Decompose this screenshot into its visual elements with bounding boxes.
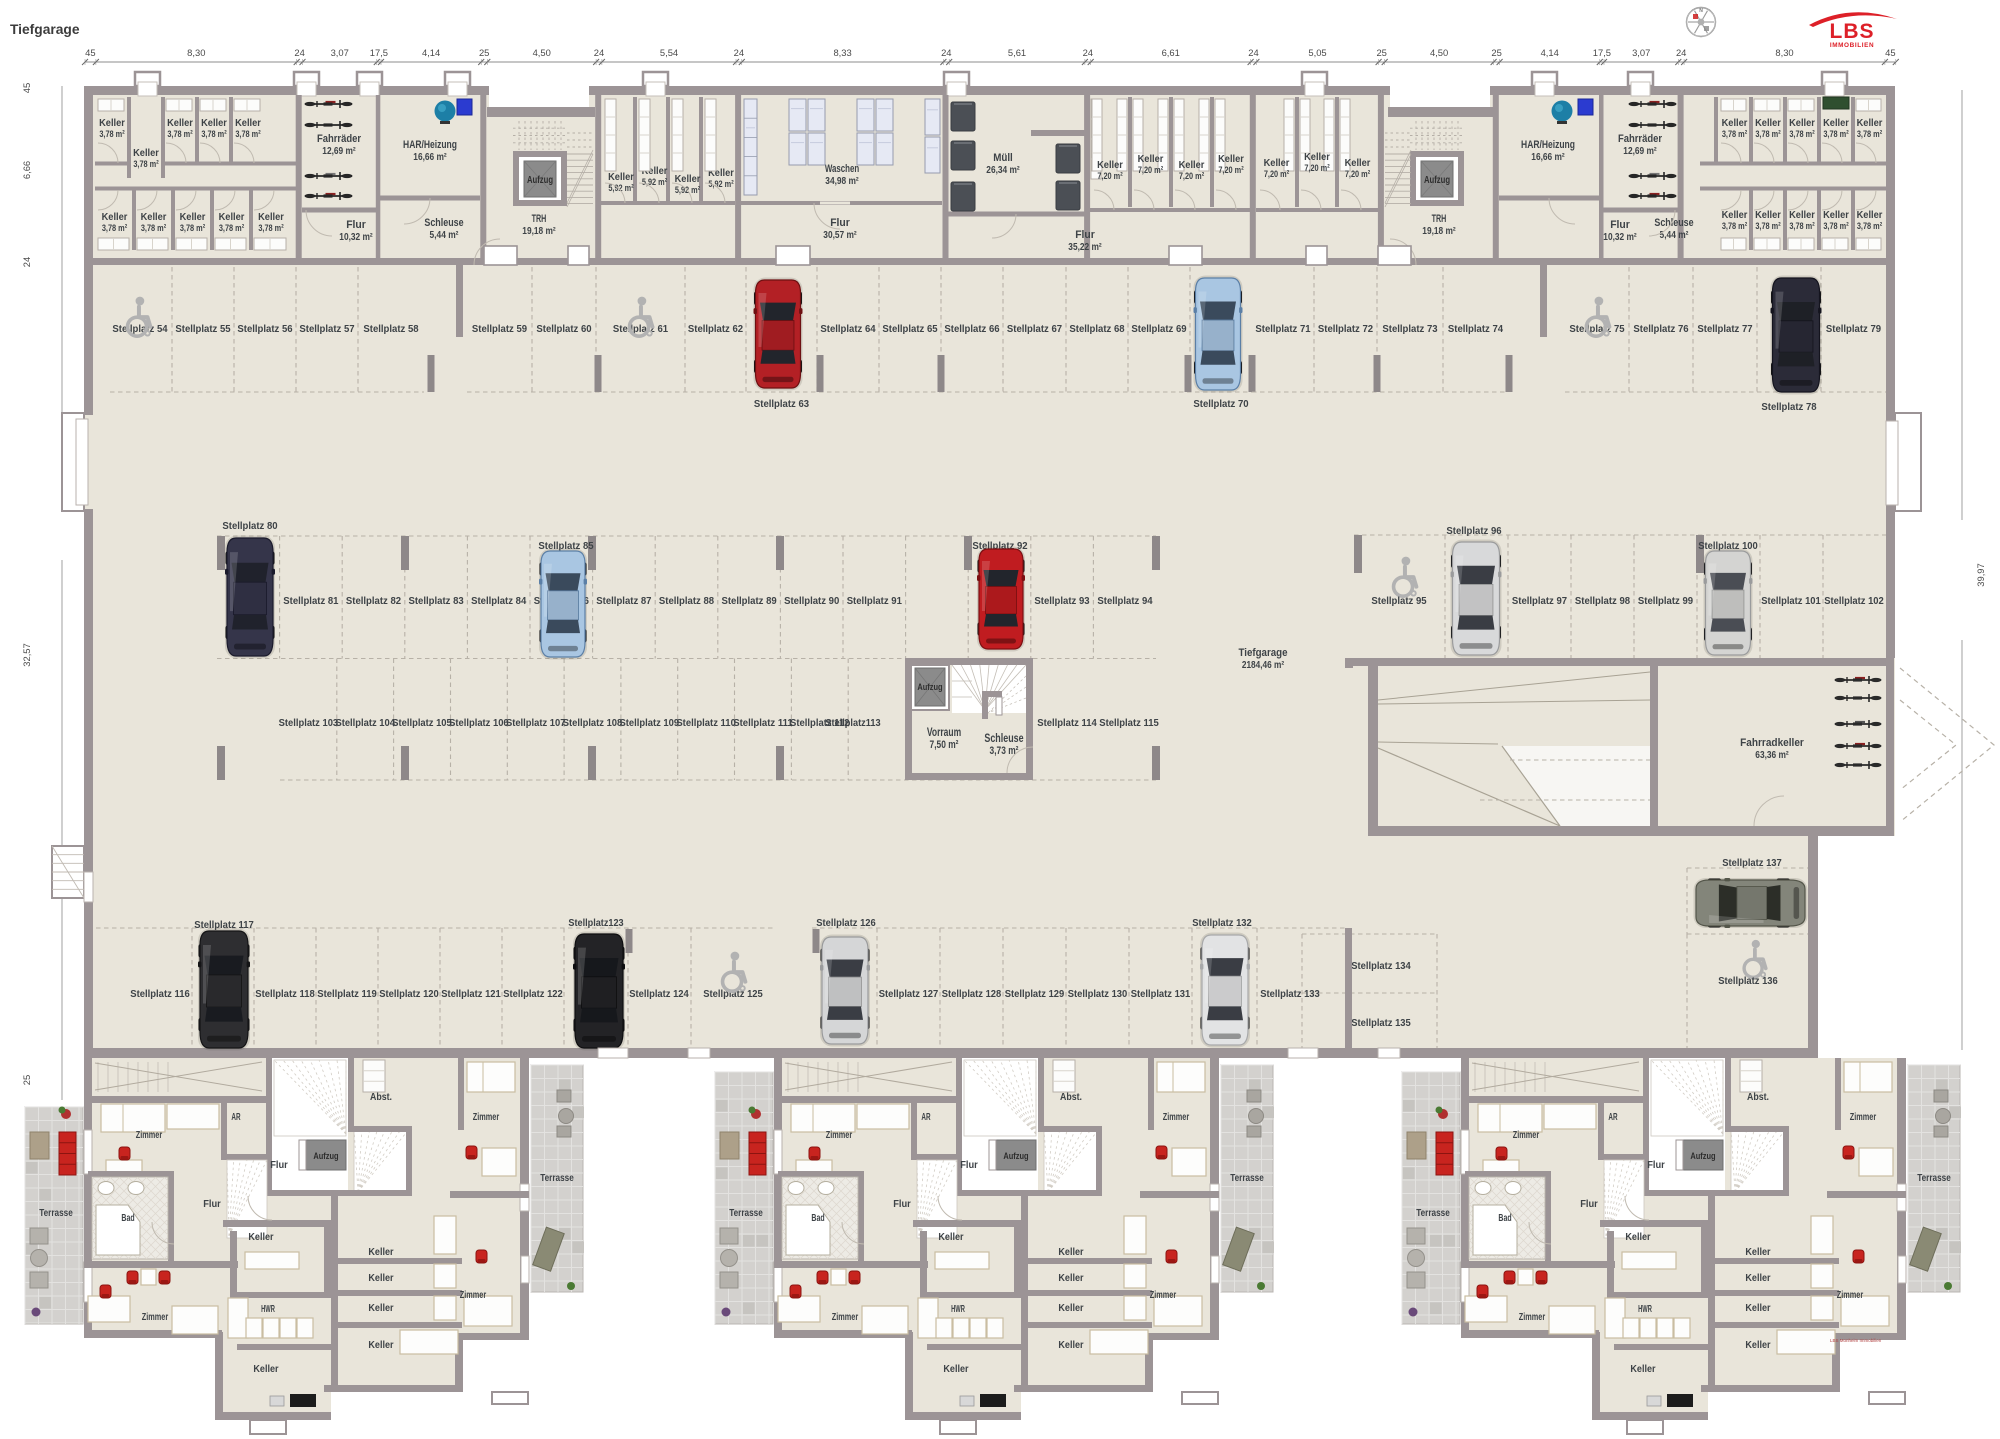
- svg-text:Zimmer: Zimmer: [460, 1290, 486, 1301]
- svg-text:4,50: 4,50: [1430, 47, 1448, 58]
- svg-text:Stellplatz 106: Stellplatz 106: [449, 718, 509, 729]
- svg-text:Abst.: Abst.: [1747, 1092, 1769, 1103]
- svg-text:Stellplatz 88: Stellplatz 88: [659, 596, 714, 607]
- svg-text:Stellplatz 54: Stellplatz 54: [112, 324, 167, 335]
- svg-text:Stellplatz 95: Stellplatz 95: [1371, 596, 1426, 607]
- svg-text:Müll: Müll: [993, 152, 1013, 164]
- svg-text:Stellplatz 135: Stellplatz 135: [1351, 1018, 1411, 1029]
- svg-text:Vorraum: Vorraum: [927, 725, 961, 739]
- svg-text:Stellplatz 98: Stellplatz 98: [1575, 596, 1630, 607]
- svg-text:Stellplatz 130: Stellplatz 130: [1068, 989, 1128, 1000]
- svg-text:Stellplatz 77: Stellplatz 77: [1697, 324, 1752, 335]
- svg-text:Stellplatz113: Stellplatz113: [825, 718, 880, 729]
- svg-text:Stellplatz 109: Stellplatz 109: [620, 718, 680, 729]
- svg-text:Zimmer: Zimmer: [473, 1112, 499, 1123]
- svg-text:Stellplatz 128: Stellplatz 128: [942, 989, 1002, 1000]
- svg-text:Schleuse: Schleuse: [424, 217, 463, 229]
- svg-text:5,92 m²: 5,92 m²: [642, 176, 667, 187]
- svg-text:Stellplatz 89: Stellplatz 89: [722, 596, 777, 607]
- svg-text:Stellplatz 134: Stellplatz 134: [1351, 961, 1411, 972]
- svg-text:8,30: 8,30: [187, 47, 205, 58]
- svg-text:Stellplatz 116: Stellplatz 116: [130, 989, 190, 1000]
- svg-text:Terrasse: Terrasse: [729, 1208, 763, 1219]
- svg-text:HAR/Heizung: HAR/Heizung: [403, 139, 457, 151]
- svg-text:3,78 m²: 3,78 m²: [1789, 128, 1814, 139]
- svg-text:Stellplatz 126: Stellplatz 126: [816, 918, 876, 929]
- svg-text:24: 24: [1676, 47, 1686, 58]
- svg-text:63,36 m²: 63,36 m²: [1755, 749, 1789, 761]
- svg-text:25: 25: [21, 1075, 32, 1085]
- svg-text:3,78 m²: 3,78 m²: [1722, 220, 1747, 231]
- svg-text:Stellplatz 131: Stellplatz 131: [1131, 989, 1191, 1000]
- svg-text:Keller: Keller: [368, 1247, 393, 1258]
- svg-text:5,92 m²: 5,92 m²: [675, 184, 700, 195]
- svg-text:Stellplatz 124: Stellplatz 124: [629, 989, 689, 1000]
- svg-text:Bad: Bad: [121, 1213, 134, 1224]
- svg-text:Stellplatz123: Stellplatz123: [568, 918, 623, 929]
- svg-text:Stellplatz 59: Stellplatz 59: [472, 324, 527, 335]
- svg-text:Keller: Keller: [253, 1364, 278, 1375]
- svg-text:3,78 m²: 3,78 m²: [180, 222, 205, 233]
- svg-text:Stellplatz 103: Stellplatz 103: [279, 718, 339, 729]
- svg-text:Keller: Keller: [1058, 1247, 1083, 1258]
- svg-text:8,33: 8,33: [833, 47, 851, 58]
- svg-text:25: 25: [479, 47, 489, 58]
- svg-text:Stellplatz 99: Stellplatz 99: [1638, 596, 1693, 607]
- svg-text:35,22 m²: 35,22 m²: [1068, 241, 1102, 253]
- svg-text:3,78 m²: 3,78 m²: [219, 222, 244, 233]
- svg-text:3,78 m²: 3,78 m²: [141, 222, 166, 233]
- svg-text:Stellplatz 122: Stellplatz 122: [503, 989, 563, 1000]
- svg-text:24: 24: [941, 47, 951, 58]
- svg-text:7,20 m²: 7,20 m²: [1179, 170, 1204, 181]
- svg-text:Stellplatz 115: Stellplatz 115: [1099, 718, 1159, 729]
- svg-text:5,61: 5,61: [1008, 47, 1026, 58]
- svg-text:39,97: 39,97: [1975, 563, 1986, 586]
- svg-text:Stellplatz 72: Stellplatz 72: [1318, 324, 1373, 335]
- svg-text:N: N: [1699, 8, 1703, 14]
- svg-text:Stellplatz 82: Stellplatz 82: [346, 596, 401, 607]
- svg-text:7,50 m²: 7,50 m²: [930, 739, 959, 751]
- svg-text:Stellplatz 84: Stellplatz 84: [471, 596, 526, 607]
- svg-text:24: 24: [294, 47, 304, 58]
- svg-text:Zimmer: Zimmer: [1163, 1112, 1189, 1123]
- svg-text:Stellplatz 62: Stellplatz 62: [688, 324, 743, 335]
- svg-text:Abst.: Abst.: [370, 1092, 392, 1103]
- svg-text:4,50: 4,50: [533, 47, 551, 58]
- svg-text:24: 24: [594, 47, 604, 58]
- svg-text:2184,46 m²: 2184,46 m²: [1242, 659, 1285, 671]
- svg-text:Stellplatz 81: Stellplatz 81: [283, 596, 338, 607]
- svg-text:7,20 m²: 7,20 m²: [1304, 162, 1329, 173]
- svg-text:7,20 m²: 7,20 m²: [1345, 168, 1370, 179]
- svg-text:Stellplatz 129: Stellplatz 129: [1005, 989, 1065, 1000]
- svg-text:Keller: Keller: [1745, 1273, 1770, 1284]
- svg-text:7,20 m²: 7,20 m²: [1264, 168, 1289, 179]
- svg-text:Flur: Flur: [960, 1160, 978, 1171]
- svg-text:Stellplatz 65: Stellplatz 65: [882, 324, 937, 335]
- svg-text:Stellplatz 67: Stellplatz 67: [1007, 324, 1062, 335]
- svg-text:3,78 m²: 3,78 m²: [102, 222, 127, 233]
- svg-text:TRH: TRH: [532, 213, 547, 225]
- svg-text:10,32 m²: 10,32 m²: [339, 231, 373, 243]
- svg-text:AR: AR: [921, 1112, 931, 1123]
- svg-text:7,20 m²: 7,20 m²: [1138, 164, 1163, 175]
- svg-text:3,78 m²: 3,78 m²: [1755, 128, 1780, 139]
- svg-text:Stellplatz 78: Stellplatz 78: [1761, 402, 1816, 413]
- svg-text:3,78 m²: 3,78 m²: [258, 222, 283, 233]
- svg-text:Schleuse: Schleuse: [984, 731, 1024, 745]
- svg-text:Stellplatz 137: Stellplatz 137: [1722, 858, 1782, 869]
- svg-text:Terrasse: Terrasse: [1416, 1208, 1450, 1219]
- svg-text:Stellplatz 104: Stellplatz 104: [335, 718, 395, 729]
- svg-text:7,20 m²: 7,20 m²: [1218, 164, 1243, 175]
- svg-text:24: 24: [21, 257, 32, 267]
- svg-text:3,07: 3,07: [331, 47, 349, 58]
- svg-text:16,66 m²: 16,66 m²: [1531, 151, 1565, 163]
- svg-text:Keller: Keller: [368, 1273, 393, 1284]
- svg-text:Zimmer: Zimmer: [1837, 1290, 1863, 1301]
- svg-text:Zimmer: Zimmer: [1850, 1112, 1876, 1123]
- svg-text:Keller: Keller: [368, 1303, 393, 1314]
- svg-text:3,78 m²: 3,78 m²: [1823, 128, 1848, 139]
- svg-text:Stellplatz 119: Stellplatz 119: [317, 989, 377, 1000]
- svg-text:Aufzug: Aufzug: [917, 682, 942, 692]
- svg-text:Bad: Bad: [1498, 1213, 1511, 1224]
- svg-text:TRH: TRH: [1432, 213, 1447, 225]
- svg-text:4,14: 4,14: [422, 47, 440, 58]
- svg-text:12,69 m²: 12,69 m²: [322, 145, 356, 157]
- svg-text:Flur: Flur: [1647, 1160, 1665, 1171]
- svg-text:3,78 m²: 3,78 m²: [1722, 128, 1747, 139]
- svg-text:32,57: 32,57: [21, 643, 32, 666]
- svg-text:Tiefgarage: Tiefgarage: [1239, 647, 1288, 659]
- svg-text:Stellplatz 120: Stellplatz 120: [379, 989, 439, 1000]
- svg-text:Stellplatz 127: Stellplatz 127: [879, 989, 939, 1000]
- svg-text:Zimmer: Zimmer: [1519, 1312, 1545, 1323]
- svg-text:Flur: Flur: [830, 217, 850, 229]
- svg-text:12,69 m²: 12,69 m²: [1623, 145, 1657, 157]
- svg-text:Terrasse: Terrasse: [1230, 1173, 1264, 1184]
- svg-text:Stellplatz 66: Stellplatz 66: [944, 324, 999, 335]
- svg-text:3,78 m²: 3,78 m²: [201, 128, 226, 139]
- svg-text:AR: AR: [1608, 1112, 1618, 1123]
- svg-text:Zimmer: Zimmer: [832, 1312, 858, 1323]
- svg-text:Zimmer: Zimmer: [142, 1312, 168, 1323]
- svg-text:3,78 m²: 3,78 m²: [167, 128, 192, 139]
- svg-text:25: 25: [1376, 47, 1386, 58]
- svg-text:Stellplatz 90: Stellplatz 90: [784, 596, 839, 607]
- svg-text:24: 24: [1248, 47, 1258, 58]
- svg-text:Stellplatz 114: Stellplatz 114: [1037, 718, 1097, 729]
- svg-text:HAR/Heizung: HAR/Heizung: [1521, 139, 1575, 151]
- svg-text:3,78 m²: 3,78 m²: [1755, 220, 1780, 231]
- svg-text:Zimmer: Zimmer: [826, 1130, 852, 1141]
- svg-text:IMMOBILIEN: IMMOBILIEN: [1830, 42, 1874, 49]
- svg-text:3,78 m²: 3,78 m²: [235, 128, 260, 139]
- svg-text:Waschen: Waschen: [825, 163, 859, 175]
- svg-text:Stellplatz 105: Stellplatz 105: [392, 718, 452, 729]
- svg-text:Flur: Flur: [203, 1199, 221, 1210]
- svg-text:Terrasse: Terrasse: [540, 1173, 574, 1184]
- svg-text:Keller: Keller: [1745, 1247, 1770, 1258]
- svg-text:3,78 m²: 3,78 m²: [1857, 220, 1882, 231]
- svg-text:8,30: 8,30: [1775, 47, 1793, 58]
- svg-text:5,92 m²: 5,92 m²: [708, 178, 733, 189]
- svg-text:Stellplatz 61: Stellplatz 61: [613, 324, 668, 335]
- svg-text:Stellplatz 55: Stellplatz 55: [175, 324, 230, 335]
- svg-text:Stellplatz 121: Stellplatz 121: [441, 989, 501, 1000]
- svg-text:Keller: Keller: [1630, 1364, 1655, 1375]
- svg-text:Stellplatz 118: Stellplatz 118: [255, 989, 315, 1000]
- svg-text:45: 45: [21, 83, 32, 93]
- svg-text:Stellplatz 64: Stellplatz 64: [820, 324, 875, 335]
- svg-text:Stellplatz 79: Stellplatz 79: [1826, 324, 1881, 335]
- svg-text:6,66: 6,66: [21, 161, 32, 179]
- svg-text:Flur: Flur: [270, 1160, 288, 1171]
- svg-text:Stellplatz 102: Stellplatz 102: [1824, 596, 1884, 607]
- svg-text:Stellplatz 93: Stellplatz 93: [1034, 596, 1089, 607]
- svg-text:Aufzug: Aufzug: [527, 175, 553, 186]
- svg-text:17,5: 17,5: [370, 47, 388, 58]
- svg-text:Tiefgarage: Tiefgarage: [10, 22, 80, 37]
- svg-text:Stellplatz 83: Stellplatz 83: [409, 596, 464, 607]
- svg-text:3,07: 3,07: [1632, 47, 1650, 58]
- svg-text:Stellplatz 60: Stellplatz 60: [536, 324, 591, 335]
- svg-text:3,78 m²: 3,78 m²: [99, 128, 124, 139]
- svg-text:10,32 m²: 10,32 m²: [1603, 231, 1637, 243]
- svg-text:Terrasse: Terrasse: [1917, 1173, 1951, 1184]
- svg-text:Stellplatz 75: Stellplatz 75: [1569, 324, 1624, 335]
- svg-text:Stellplatz 68: Stellplatz 68: [1069, 324, 1124, 335]
- svg-text:Stellplatz 73: Stellplatz 73: [1382, 324, 1437, 335]
- svg-text:Fahrradkeller: Fahrradkeller: [1740, 737, 1804, 749]
- svg-text:Keller: Keller: [368, 1340, 393, 1351]
- svg-text:Stellplatz 132: Stellplatz 132: [1192, 918, 1252, 929]
- svg-text:AR: AR: [231, 1112, 241, 1123]
- svg-text:Fahrräder: Fahrräder: [317, 133, 362, 145]
- svg-text:3,78 m²: 3,78 m²: [133, 158, 158, 169]
- svg-text:Stellplatz 136: Stellplatz 136: [1718, 976, 1778, 987]
- svg-text:45: 45: [85, 47, 95, 58]
- svg-text:Stellplatz 57: Stellplatz 57: [299, 324, 354, 335]
- svg-text:Keller: Keller: [1058, 1273, 1083, 1284]
- svg-text:34,98 m²: 34,98 m²: [825, 175, 859, 187]
- svg-text:Aufzug: Aufzug: [1424, 175, 1450, 186]
- svg-text:16,66 m²: 16,66 m²: [413, 151, 447, 163]
- svg-text:Flur: Flur: [893, 1199, 911, 1210]
- svg-text:Stellplatz 56: Stellplatz 56: [237, 324, 292, 335]
- svg-text:Stellplatz 133: Stellplatz 133: [1260, 989, 1320, 1000]
- svg-text:Stellplatz 58: Stellplatz 58: [363, 324, 418, 335]
- svg-text:Fahrräder: Fahrräder: [1618, 133, 1663, 145]
- svg-text:Stellplatz 91: Stellplatz 91: [847, 596, 902, 607]
- svg-text:5,54: 5,54: [660, 47, 678, 58]
- svg-text:Keller: Keller: [1745, 1303, 1770, 1314]
- svg-text:30,57 m²: 30,57 m²: [823, 229, 857, 241]
- svg-text:19,18 m²: 19,18 m²: [522, 225, 556, 237]
- svg-text:Keller: Keller: [1625, 1232, 1650, 1243]
- svg-text:6,61: 6,61: [1162, 47, 1180, 58]
- svg-text:Stellplatz 70: Stellplatz 70: [1193, 399, 1248, 410]
- svg-text:5,44 m²: 5,44 m²: [430, 229, 459, 241]
- svg-text:HWR: HWR: [261, 1304, 275, 1315]
- svg-text:Stellplatz 108: Stellplatz 108: [563, 718, 623, 729]
- svg-text:Stellplatz 96: Stellplatz 96: [1446, 526, 1501, 537]
- svg-text:Stellplatz 76: Stellplatz 76: [1633, 324, 1688, 335]
- svg-text:Stellplatz 110: Stellplatz 110: [676, 718, 736, 729]
- svg-text:Zimmer: Zimmer: [1150, 1290, 1176, 1301]
- svg-text:Keller: Keller: [1058, 1340, 1083, 1351]
- svg-text:4,14: 4,14: [1541, 47, 1559, 58]
- svg-text:Keller: Keller: [248, 1232, 273, 1243]
- svg-text:Keller: Keller: [943, 1364, 968, 1375]
- svg-text:Terrasse: Terrasse: [39, 1208, 73, 1219]
- svg-text:24: 24: [734, 47, 744, 58]
- svg-text:Stellplatz 63: Stellplatz 63: [754, 399, 809, 410]
- svg-text:Flur: Flur: [1580, 1199, 1598, 1210]
- svg-text:Aufzug: Aufzug: [1690, 1151, 1715, 1161]
- svg-text:Stellplatz 94: Stellplatz 94: [1097, 596, 1152, 607]
- svg-text:Zimmer: Zimmer: [1513, 1130, 1539, 1141]
- svg-text:5,05: 5,05: [1308, 47, 1326, 58]
- svg-text:HWR: HWR: [951, 1304, 965, 1315]
- svg-text:Stellplatz 111: Stellplatz 111: [733, 718, 793, 729]
- svg-text:Flur: Flur: [1075, 229, 1095, 241]
- svg-text:Aufzug: Aufzug: [313, 1151, 338, 1161]
- svg-text:25: 25: [1491, 47, 1501, 58]
- svg-text:Stellplatz 74: Stellplatz 74: [1448, 324, 1503, 335]
- svg-text:Stellplatz 101: Stellplatz 101: [1761, 596, 1821, 607]
- svg-text:Stellplatz 80: Stellplatz 80: [222, 521, 277, 532]
- svg-text:3,78 m²: 3,78 m²: [1823, 220, 1848, 231]
- svg-text:Flur: Flur: [1610, 219, 1630, 231]
- svg-text:7,20 m²: 7,20 m²: [1097, 170, 1122, 181]
- svg-text:LBS Monheim Immobilien: LBS Monheim Immobilien: [1830, 1338, 1882, 1343]
- svg-text:Keller: Keller: [938, 1232, 963, 1243]
- svg-text:19,18 m²: 19,18 m²: [1422, 225, 1456, 237]
- svg-text:HWR: HWR: [1638, 1304, 1652, 1315]
- svg-text:Stellplatz 69: Stellplatz 69: [1131, 324, 1186, 335]
- svg-text:3,78 m²: 3,78 m²: [1857, 128, 1882, 139]
- svg-text:Stellplatz 97: Stellplatz 97: [1512, 596, 1567, 607]
- svg-text:45: 45: [1885, 47, 1895, 58]
- svg-text:Aufzug: Aufzug: [1003, 1151, 1028, 1161]
- svg-text:Flur: Flur: [346, 219, 366, 231]
- svg-text:Keller: Keller: [1745, 1340, 1770, 1351]
- svg-text:26,34 m²: 26,34 m²: [986, 164, 1020, 176]
- svg-text:24: 24: [1083, 47, 1093, 58]
- svg-text:Bad: Bad: [811, 1213, 824, 1224]
- svg-text:Abst.: Abst.: [1060, 1092, 1082, 1103]
- svg-text:Stellplatz 87: Stellplatz 87: [596, 596, 651, 607]
- svg-text:Stellplatz 107: Stellplatz 107: [506, 718, 566, 729]
- svg-text:17,5: 17,5: [1593, 47, 1611, 58]
- svg-text:Keller: Keller: [1058, 1303, 1083, 1314]
- svg-text:LBS: LBS: [1830, 20, 1875, 43]
- svg-text:Zimmer: Zimmer: [136, 1130, 162, 1141]
- svg-text:Stellplatz 71: Stellplatz 71: [1255, 324, 1310, 335]
- svg-text:3,78 m²: 3,78 m²: [1789, 220, 1814, 231]
